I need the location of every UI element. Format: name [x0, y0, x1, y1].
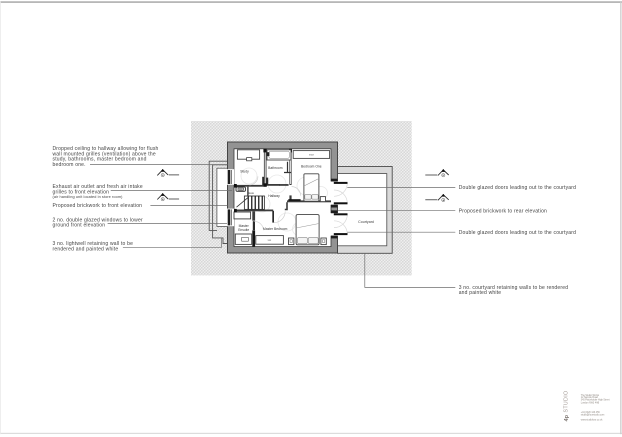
svg-text:4p: 4p — [564, 414, 570, 421]
svg-text:345 Placeholder High Street: 345 Placeholder High Street — [581, 399, 610, 402]
svg-text:ground front elevation: ground front elevation — [53, 223, 106, 229]
svg-text:Proposed brickwork to front el: Proposed brickwork to front elevation — [53, 203, 143, 209]
svg-text:Proposed brickwork to rear ele: Proposed brickwork to rear elevation — [459, 208, 547, 214]
svg-text:Courtyard: Courtyard — [358, 220, 374, 224]
svg-text:(air handling unit located in: (air handling unit located in store room… — [53, 195, 124, 199]
svg-text:Store: Store — [248, 191, 255, 195]
svg-text:Bedroom One: Bedroom One — [301, 164, 322, 168]
svg-text:Double glazed doors leading ou: Double glazed doors leading out to the c… — [459, 230, 576, 236]
svg-text:bedroom one.: bedroom one. — [53, 162, 86, 168]
svg-text:and painted white: and painted white — [459, 290, 502, 296]
svg-text:rendered and painted white: rendered and painted white — [53, 246, 119, 252]
svg-text:Double glazed doors leading ou: Double glazed doors leading out to the c… — [459, 185, 576, 191]
svg-text:xxxx: xxxx — [309, 154, 315, 157]
svg-text:www.studiofour.co.uk: www.studiofour.co.uk — [581, 419, 603, 422]
svg-text:Hallway: Hallway — [268, 194, 280, 198]
svg-text:London NW3 4AB: London NW3 4AB — [581, 401, 600, 404]
svg-text:STUDIO: STUDIO — [564, 391, 570, 413]
svg-text:studio@fourstudio.com: studio@fourstudio.com — [581, 414, 605, 417]
svg-text:+44 (0)20 123 456: +44 (0)20 123 456 — [581, 412, 601, 414]
svg-text:Master Bedroom: Master Bedroom — [263, 227, 288, 231]
svg-text:Bathroom: Bathroom — [268, 166, 283, 170]
svg-text:Ensuite: Ensuite — [238, 228, 249, 232]
svg-text:Study: Study — [240, 169, 249, 173]
